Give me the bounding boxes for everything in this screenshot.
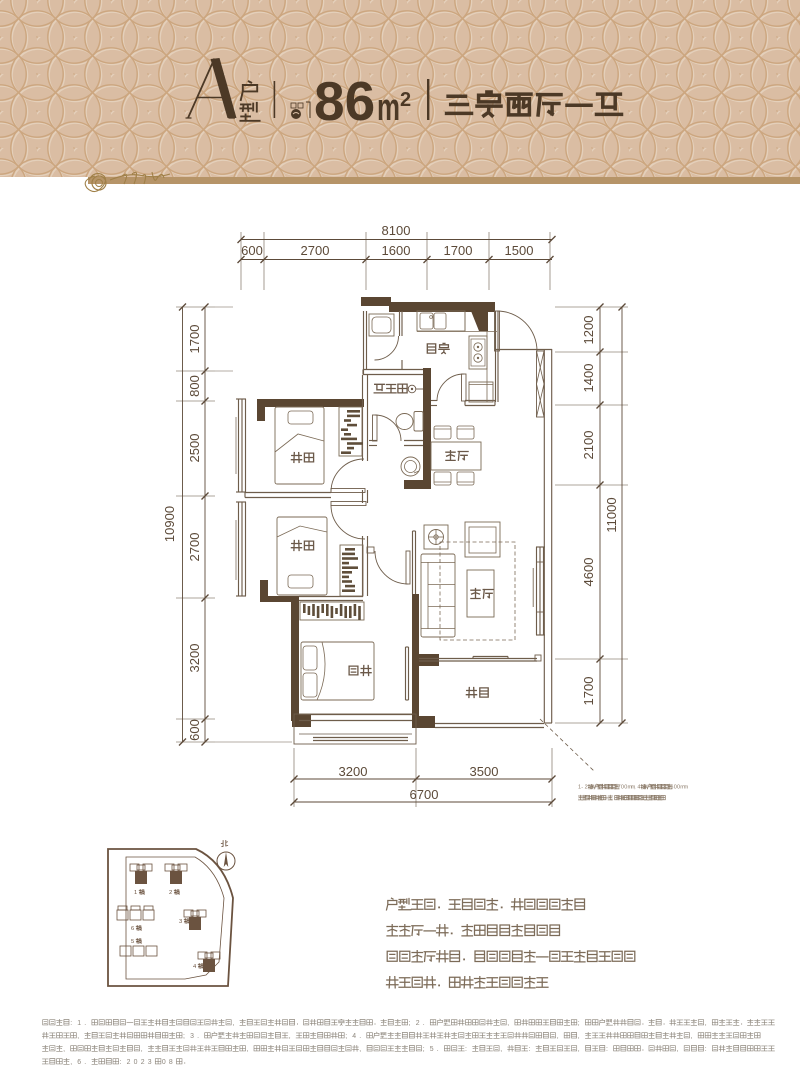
svg-text:2100: 2100	[581, 431, 596, 460]
svg-text:3: 3	[179, 919, 182, 925]
svg-text:2: 2	[169, 890, 172, 896]
svg-text:2700: 2700	[187, 533, 202, 562]
svg-text:600: 600	[241, 243, 263, 258]
svg-text:2: 2	[416, 1020, 420, 1027]
svg-text:2700: 2700	[301, 243, 330, 258]
svg-text:1500: 1500	[505, 243, 534, 258]
svg-text:,: ,	[578, 1033, 580, 1040]
svg-text:.: .	[359, 1033, 361, 1040]
svg-text:.: .	[437, 1046, 439, 1053]
svg-text:2: 2	[585, 785, 588, 791]
svg-text:;: ;	[578, 1020, 580, 1027]
svg-text:-: -	[581, 785, 583, 791]
svg-text:1700: 1700	[581, 677, 596, 706]
svg-text:800: 800	[187, 375, 202, 397]
svg-text:,: ,	[634, 785, 636, 791]
svg-text:A: A	[591, 785, 595, 791]
svg-text:6: 6	[77, 1059, 81, 1066]
svg-text:,: ,	[705, 1020, 707, 1027]
svg-text:,: ,	[691, 1033, 693, 1040]
svg-text:;: ;	[409, 1020, 411, 1027]
svg-text:3: 3	[190, 1033, 194, 1040]
svg-text::: :	[465, 1046, 467, 1053]
svg-text:4: 4	[193, 964, 197, 970]
svg-text:4: 4	[352, 1033, 356, 1040]
svg-text:,: ,	[289, 1033, 291, 1040]
svg-text:1700: 1700	[444, 243, 473, 258]
svg-text:.: .	[197, 1033, 199, 1040]
svg-text:;: ;	[183, 1033, 185, 1040]
svg-text:2: 2	[141, 1059, 145, 1066]
svg-text::: :	[705, 1046, 707, 1053]
svg-text:11000: 11000	[604, 497, 619, 532]
svg-text:6: 6	[131, 926, 134, 932]
svg-text:3200: 3200	[339, 764, 368, 779]
svg-text:,: ,	[232, 1020, 234, 1027]
svg-text:,: ,	[70, 1059, 72, 1066]
svg-text:,: ,	[359, 1046, 361, 1053]
svg-text:2500: 2500	[187, 434, 202, 463]
svg-text:3: 3	[148, 1059, 152, 1066]
svg-text:.: .	[423, 1020, 425, 1027]
svg-text:,: ,	[63, 1046, 65, 1053]
svg-text:10900: 10900	[162, 506, 177, 542]
svg-text:2: 2	[127, 1059, 131, 1066]
svg-text::: :	[120, 1059, 122, 1066]
svg-text:1700: 1700	[187, 325, 202, 354]
svg-text:6700: 6700	[410, 787, 439, 802]
svg-text:;: ;	[423, 1046, 425, 1053]
svg-text:3500: 3500	[470, 764, 499, 779]
svg-text:8: 8	[169, 1059, 173, 1066]
svg-text:,: ,	[611, 796, 613, 802]
svg-text:4600: 4600	[581, 558, 596, 587]
svg-text:5: 5	[131, 939, 134, 945]
svg-text::: :	[606, 1046, 608, 1053]
svg-text:8100: 8100	[382, 223, 411, 238]
svg-text:,: ,	[247, 1046, 249, 1053]
svg-text:1400: 1400	[581, 364, 596, 393]
svg-text:1: 1	[77, 1020, 81, 1027]
svg-text:1: 1	[134, 890, 137, 896]
svg-text:A: A	[644, 785, 648, 791]
svg-text:0: 0	[134, 1059, 138, 1066]
svg-text:5: 5	[430, 1046, 434, 1053]
svg-text:1600: 1600	[382, 243, 411, 258]
svg-text:,: ,	[507, 1020, 509, 1027]
svg-text:,: ,	[677, 1046, 679, 1053]
svg-text:.: .	[84, 1020, 86, 1027]
svg-text::: :	[70, 1020, 72, 1027]
svg-text:3200: 3200	[187, 644, 202, 673]
svg-text:,: ,	[77, 1033, 79, 1040]
svg-text::: :	[529, 1046, 531, 1053]
svg-text:,: ,	[141, 1046, 143, 1053]
svg-text:4: 4	[637, 785, 640, 791]
svg-text:,: ,	[557, 1033, 559, 1040]
svg-text:,: ,	[500, 1046, 502, 1053]
svg-text:m: m	[684, 785, 689, 791]
svg-text:.: .	[84, 1059, 86, 1066]
svg-text:,: ,	[578, 1046, 580, 1053]
svg-text:1200: 1200	[581, 316, 596, 345]
svg-text:0: 0	[162, 1059, 166, 1066]
svg-text:;: ;	[345, 1033, 347, 1040]
svg-text:600: 600	[187, 719, 202, 741]
